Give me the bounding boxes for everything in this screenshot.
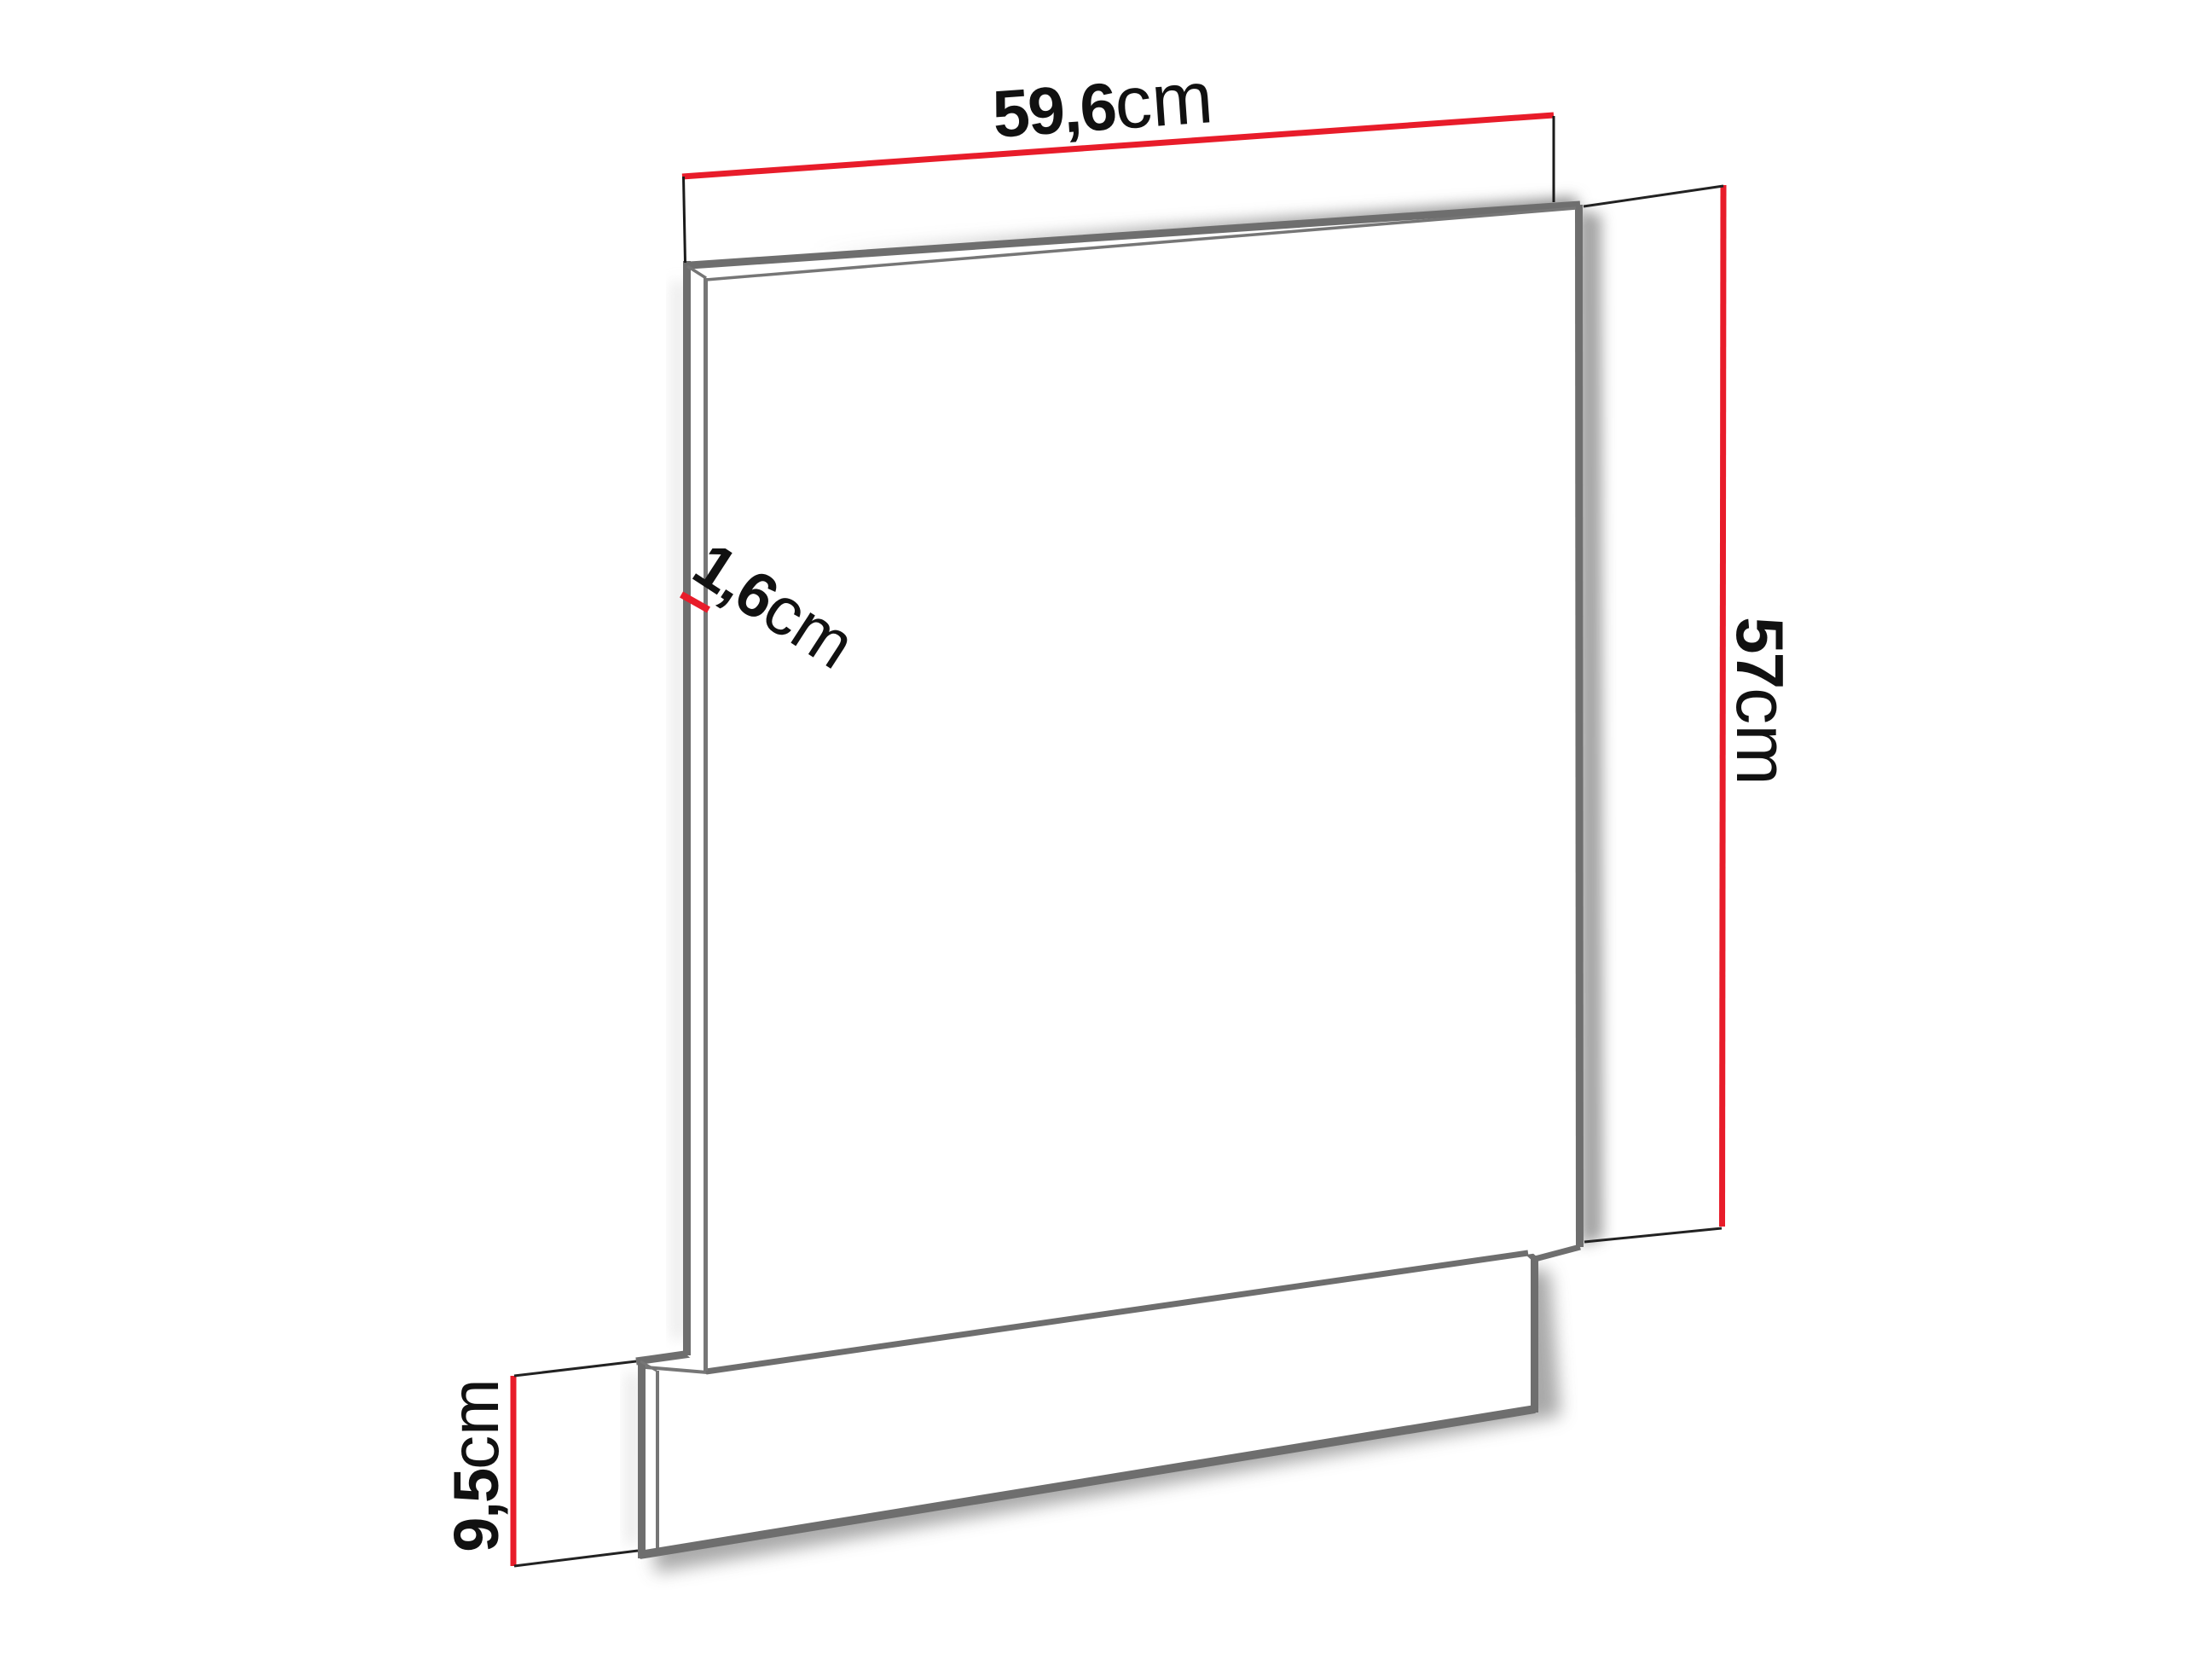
svg-text:9,5cm: 9,5cm <box>437 1378 512 1552</box>
svg-text:57cm: 57cm <box>1721 617 1803 785</box>
